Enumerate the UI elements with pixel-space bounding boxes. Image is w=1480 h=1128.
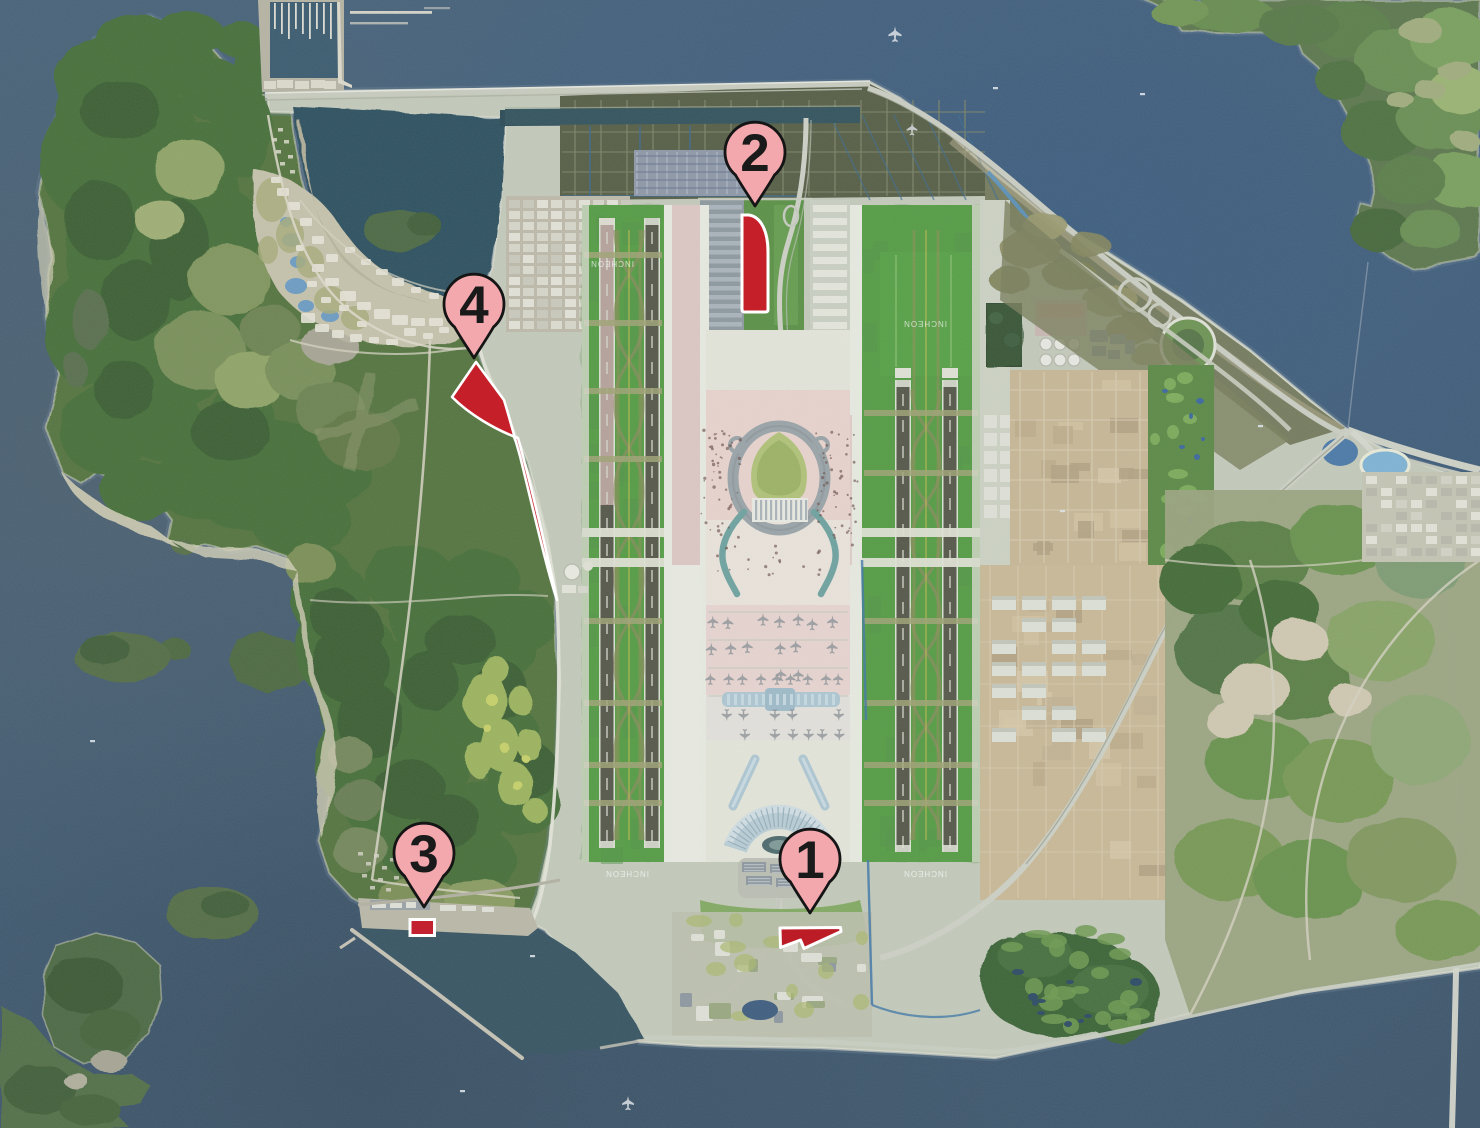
svg-text:3: 3 bbox=[409, 825, 438, 884]
svg-text:1: 1 bbox=[795, 831, 824, 890]
svg-text:4: 4 bbox=[459, 276, 489, 335]
svg-text:2: 2 bbox=[740, 124, 769, 183]
